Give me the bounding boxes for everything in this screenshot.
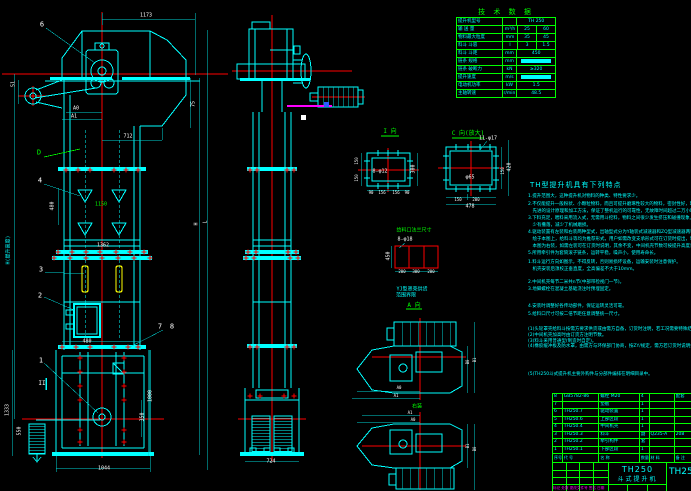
- balloon-7: 7: [158, 324, 162, 331]
- parts-list-rows: 8GB5782-86螺栓 M204配套7垫板16TH250.7驱动装置15TH2…: [553, 394, 691, 454]
- parts-cell: [675, 439, 691, 446]
- view-a-label: A 向: [407, 303, 420, 309]
- parts-cell: [675, 447, 691, 454]
- selection-grip[interactable]: [301, 115, 306, 120]
- parts-cell: [675, 424, 691, 431]
- flange-bolt-ticks: [52, 168, 301, 445]
- tech-cell: TH 250: [516, 18, 555, 25]
- dim-label: 150: [501, 167, 505, 174]
- parts-cell: [650, 394, 675, 401]
- balloon-3: 3: [39, 267, 43, 274]
- parts-cell: 5: [553, 417, 563, 424]
- parts-cell: 垫板: [599, 402, 639, 409]
- parts-cell: 1: [640, 447, 650, 454]
- tech-cell: mm: [502, 50, 517, 57]
- parts-header-cell: 数量: [640, 454, 650, 462]
- osnap-marker: [324, 102, 329, 107]
- dim-label: 1333: [6, 404, 11, 416]
- dim-label: 200: [398, 270, 405, 274]
- tech-cell: 450: [516, 50, 555, 57]
- tech-row: 链条 破断力kN≥320: [457, 65, 555, 73]
- parts-cell: 驱动装置: [599, 409, 639, 416]
- tech-row: 提升速度m/s: [457, 73, 555, 81]
- dim-label: H: [195, 222, 200, 225]
- dim-label: A0: [73, 107, 79, 112]
- tech-cell: 物料最大粒度: [457, 34, 502, 41]
- parts-cell: [650, 409, 675, 416]
- dim-label: II: [38, 381, 45, 387]
- parts-cell: 螺栓 M20: [599, 394, 639, 401]
- tech-cell: 25: [517, 26, 536, 33]
- dim-label: A1: [394, 394, 399, 398]
- dim-label: 75: [192, 101, 197, 107]
- title-cell: TH250 斗式提升机: [609, 463, 667, 491]
- balloon-4: 4: [38, 178, 42, 185]
- machine-name: 斗式提升机: [609, 474, 666, 483]
- dim-label: 712: [123, 135, 132, 140]
- dim-label: A1: [408, 411, 413, 415]
- tech-cell: 1.5: [536, 42, 555, 49]
- parts-cell: 牵引构件: [599, 439, 639, 446]
- parts-cell: [650, 402, 675, 409]
- dim-label: 156: [392, 191, 399, 195]
- model-number: TH250: [609, 465, 666, 474]
- parts-cell: 1: [640, 424, 650, 431]
- dim-label: 1173: [140, 14, 152, 19]
- yj-note-line-2: 范围界限: [396, 294, 416, 299]
- parts-list-header: 序号代 号名 称数量材 料备 注: [553, 454, 691, 463]
- dim-label: 8-φ12: [372, 170, 387, 175]
- dim-label: 200: [427, 270, 434, 274]
- parts-row: 4TH250.4中间机壳1: [553, 424, 691, 432]
- tech-cell: 35: [517, 34, 536, 41]
- dim-label: φ65: [465, 176, 474, 181]
- tech-row: 电动机功率kW1.5: [457, 81, 555, 89]
- balloon-6: 6: [40, 22, 44, 29]
- tech-cell: 提升速度: [457, 74, 502, 81]
- dim-label: L: [204, 220, 209, 223]
- dim-label: A0: [397, 386, 402, 390]
- parts-cell: TH250.4: [563, 424, 600, 431]
- dim-label: 478: [465, 205, 474, 210]
- parts-cell: [563, 402, 600, 409]
- parts-cell: 4: [553, 424, 563, 431]
- parts-cell: 1: [640, 402, 650, 409]
- tech-cell: 主轴转速: [457, 90, 502, 97]
- feed-flange-outline: [395, 246, 438, 268]
- parts-cell: [650, 417, 675, 424]
- parts-row: 7垫板1: [553, 402, 691, 410]
- technical-data-rows: 提升机型号TH 250输 送 量m³/h2560物料最大粒度mm3545料斗 斗…: [456, 17, 556, 98]
- parts-cell: TH250.2: [563, 439, 600, 446]
- balloon-8: 8: [170, 324, 174, 331]
- parts-cell: [650, 424, 675, 431]
- parts-cell: 208: [675, 432, 691, 439]
- right-mount-label: 右装: [412, 405, 422, 410]
- parts-cell: Q235-A: [650, 432, 675, 439]
- dim-label: 150: [454, 198, 461, 202]
- tech-row: 料斗 斗容l31.5: [457, 41, 555, 49]
- dim-label: 480: [51, 201, 56, 210]
- tech-row: 提升机型号TH 250: [457, 18, 555, 25]
- tech-cell: 45: [536, 34, 555, 41]
- tech-row: 物料最大粒度mm3545: [457, 33, 555, 41]
- dim-label: 300: [412, 164, 417, 173]
- dim-label: 1044: [98, 467, 110, 472]
- tech-cell: 料斗 斗容: [457, 42, 502, 49]
- parts-row: 6TH250.7驱动装置1: [553, 409, 691, 417]
- parts-cell: 配套: [675, 394, 691, 401]
- parts-header-cell: 序号: [553, 454, 563, 462]
- parts-row: 1TH250.1下部区段1: [553, 447, 691, 455]
- tech-cell: 48.5: [516, 90, 555, 97]
- cad-canvas[interactable]: 117365175A0A1712D448011501362H(提升高度)32HL…: [0, 0, 691, 491]
- dim-label: 1000: [149, 390, 154, 402]
- dim-label: 8-φ18: [397, 238, 412, 243]
- revision-grid: 标记 处数 更改文件号 签名 日期: [553, 463, 609, 491]
- parts-cell: 套: [640, 439, 650, 446]
- revision-note: 标记 处数 更改文件号 签名 日期: [553, 485, 604, 490]
- dim-label: 550: [18, 426, 23, 435]
- parts-cell: 1: [640, 409, 650, 416]
- tech-cell: kW: [502, 82, 517, 89]
- dim-label: A1: [71, 115, 77, 120]
- stage-mark-boxes: [609, 484, 666, 491]
- dim-label: A0: [411, 418, 416, 422]
- technical-data-table: 技 术 数 据 提升机型号TH 250输 送 量m³/h2560物料最大粒度mm…: [456, 7, 556, 98]
- dim-label: 1362: [97, 244, 109, 249]
- parts-cell: 4: [640, 394, 650, 401]
- tech-cell: 60: [536, 26, 555, 33]
- parts-cell: 1: [640, 417, 650, 424]
- balloon-1: 1: [39, 358, 43, 365]
- tech-row: 输 送 量m³/h2560: [457, 25, 555, 33]
- parts-cell: GB5782-86: [563, 394, 600, 401]
- tech-cell: mm: [502, 34, 517, 41]
- dim-label: 450: [387, 251, 392, 260]
- dim-label: 150: [355, 174, 359, 181]
- tech-cell: [516, 74, 555, 81]
- dim-label: 480: [82, 340, 91, 345]
- tech-cell: 3: [517, 42, 536, 49]
- parts-cell: [650, 447, 675, 454]
- tech-cell: r/min: [502, 90, 517, 97]
- parts-header-cell: 备 注: [675, 454, 691, 462]
- flange-bars: [50, 77, 310, 456]
- balloon-2: 2: [38, 293, 42, 300]
- dim-label: 420: [508, 162, 513, 171]
- dim-label: 90: [369, 191, 374, 195]
- parts-cell: TH250.6: [563, 417, 600, 424]
- technical-data-title: 技 术 数 据: [456, 7, 556, 17]
- dim-label: 300: [412, 270, 419, 274]
- dim-label: 11-φ17: [479, 137, 497, 142]
- dim-label: 724: [266, 460, 275, 465]
- parts-cell: 3: [553, 432, 563, 439]
- parts-cell: 中间机壳: [599, 424, 639, 431]
- tech-cell: 提升机型号: [457, 18, 502, 25]
- parts-header-cell: 名 称: [599, 454, 639, 462]
- parts-row: 3TH250.3料斗副Q235-A208: [553, 432, 691, 440]
- tech-row: 链条 规格mm: [457, 57, 555, 65]
- tech-cell: 链条 破断力: [457, 66, 502, 73]
- parts-row: 5TH250.6上部区段1: [553, 417, 691, 425]
- tech-cell: l: [502, 42, 517, 49]
- tech-cell: [516, 58, 555, 65]
- parts-cell: 1: [553, 447, 563, 454]
- parts-cell: [650, 439, 675, 446]
- tech-cell: [502, 18, 517, 25]
- dim-label: 156: [378, 191, 385, 195]
- tech-cell: m³/h: [502, 26, 517, 33]
- height-dim-label: H(提升高度): [7, 235, 12, 264]
- parts-cell: 下部区段: [599, 447, 639, 454]
- dim-label: 350: [141, 412, 146, 421]
- tech-cell: 料斗 斗距: [457, 50, 502, 57]
- parts-row: 8GB5782-86螺栓 M204配套: [553, 394, 691, 402]
- dim-label: B0: [473, 447, 477, 452]
- parts-cell: TH250.3: [563, 432, 600, 439]
- tech-cell: 1.5: [516, 82, 555, 89]
- tech-row: 料斗 斗距mm450: [457, 49, 555, 57]
- dim-label: B0: [466, 360, 470, 365]
- parts-cell: 料斗: [599, 432, 639, 439]
- tech-cell: m/s: [502, 74, 517, 81]
- parts-cell: 上部区段: [599, 417, 639, 424]
- parts-cell: [675, 417, 691, 424]
- tech-row: 主轴转速r/min48.5: [457, 89, 555, 97]
- parts-list: 8GB5782-86螺栓 M204配套7垫板16TH250.7驱动装置15TH2…: [552, 393, 691, 491]
- title-block: 标记 处数 更改文件号 签名 日期 TH250 斗式提升机 TH250: [553, 463, 691, 491]
- parts-cell: [675, 409, 691, 416]
- green-annotations: [44, 136, 484, 309]
- dim-label: 200: [472, 198, 479, 202]
- detail-d-label: D: [37, 150, 41, 157]
- parts-cell: TH250.1: [563, 447, 600, 454]
- tech-cell: mm: [502, 58, 517, 65]
- parts-cell: 6: [553, 409, 563, 416]
- parts-header-cell: 材 料: [650, 454, 675, 462]
- parts-cell: 8: [553, 394, 563, 401]
- dim-label: 51: [12, 81, 17, 87]
- dim-label: 1150: [95, 203, 107, 208]
- parts-header-cell: 代 号: [563, 454, 600, 462]
- parts-cell: 副: [640, 432, 650, 439]
- dim-label: B1: [473, 358, 477, 363]
- parts-cell: TH250.7: [563, 409, 600, 416]
- tech-cell: 输 送 量: [457, 26, 502, 33]
- tech-cell: ≥320: [516, 66, 555, 73]
- dim-label: 150: [355, 157, 359, 164]
- feed-flange-title: 给料口法兰尺寸: [396, 229, 431, 234]
- view-i-label: I 向: [383, 129, 396, 135]
- parts-cell: 7: [553, 402, 563, 409]
- dim-label: 90: [405, 191, 410, 195]
- tech-cell: 电动机功率: [457, 82, 502, 89]
- parts-cell: [675, 402, 691, 409]
- drawing-number: TH250: [667, 463, 691, 491]
- tech-cell: 链条 规格: [457, 58, 502, 65]
- parts-row: 2TH250.2牵引构件套: [553, 439, 691, 447]
- dim-label: B1: [466, 444, 470, 449]
- tech-cell: kN: [502, 66, 517, 73]
- parts-cell: 2: [553, 439, 563, 446]
